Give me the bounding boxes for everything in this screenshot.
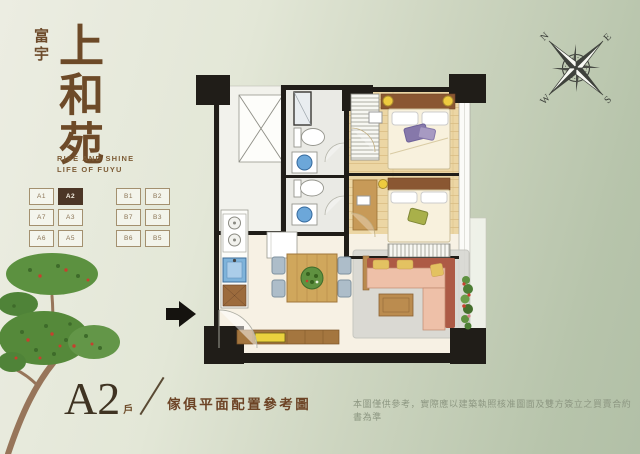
tv <box>255 333 285 342</box>
unit-a7[interactable]: A7 <box>29 209 54 226</box>
dining-chair <box>272 280 285 297</box>
caption-divider <box>140 377 165 415</box>
brochure-page: 富宇 上和苑 RISE AND SHINE LIFE OF FUYU A1 A2… <box>0 0 640 454</box>
unit-a1[interactable]: A1 <box>29 188 54 205</box>
dining-chair <box>338 280 351 297</box>
compass-w-label: W <box>538 92 553 107</box>
pillow <box>421 192 447 203</box>
unit-b6[interactable]: B6 <box>116 230 141 247</box>
compass-s-label: S <box>602 94 614 106</box>
brand-tagline-line2: LIFE OF FUYU <box>57 164 134 175</box>
brand-tagline: RISE AND SHINE LIFE OF FUYU <box>57 153 134 176</box>
table-plant <box>301 267 323 289</box>
pillow <box>392 112 418 125</box>
tree-canopy <box>0 253 120 372</box>
sofa-seat-right <box>423 288 445 330</box>
bedside-lamp <box>383 96 393 106</box>
caption-unit-number: A2 <box>64 376 120 422</box>
floor-plan <box>163 64 493 376</box>
keyplan-building-b: B1 B2 B7 B3 B6 B5 <box>116 188 170 247</box>
compass-icon: N E S W <box>526 18 626 118</box>
dining-chair <box>338 257 351 274</box>
nightstand <box>369 112 382 123</box>
bedside-lamp <box>443 96 453 106</box>
keyplan-building-a: A1 A2 A7 A3 A6 A5 <box>29 188 83 247</box>
unit-a6[interactable]: A6 <box>29 230 54 247</box>
toilet1-bowl <box>302 129 325 146</box>
brand-company-name: 富宇 <box>30 28 51 98</box>
bed2-wardrobe <box>388 244 450 257</box>
unit-b1[interactable]: B1 <box>116 188 141 205</box>
brand-project-name: 上和苑 <box>54 22 99 172</box>
caption-text: 傢俱平面配置參考圖 <box>167 393 311 413</box>
toilet1-tank <box>294 128 301 147</box>
sink2 <box>297 207 312 222</box>
plan-caption-row: A2 戶 傢俱平面配置參考圖 <box>64 370 384 422</box>
unit-a3[interactable]: A3 <box>58 209 83 226</box>
disclaimer-text: 本圖僅供參考，實際應以建築執照核准圖面及雙方簽立之買賣合約書為準 <box>353 397 633 423</box>
unit-a2-selected[interactable]: A2 <box>58 188 83 205</box>
brand-tagline-line1: RISE AND SHINE <box>57 153 134 164</box>
bedside-lamp <box>379 180 388 189</box>
sofa-back-right <box>445 258 455 328</box>
desk-laptop <box>357 196 370 205</box>
pillow <box>422 112 448 125</box>
balcony <box>470 218 486 330</box>
caption-unit-suffix: 戶 <box>123 401 133 416</box>
bed2-headboard <box>388 178 450 190</box>
sofa-cushion <box>430 263 444 277</box>
sofa-cushion <box>373 260 389 269</box>
sink1 <box>297 155 312 170</box>
entry-arrow-icon <box>166 301 196 327</box>
coffee-table <box>379 294 413 316</box>
toilet2-tank <box>294 180 301 197</box>
elevator-shaft <box>239 95 283 162</box>
sofa-cushion <box>397 260 413 269</box>
dining-chair <box>272 257 285 274</box>
compass-e-label: E <box>602 32 614 44</box>
unit-a5[interactable]: A5 <box>58 230 83 247</box>
master-bedroom <box>351 94 455 169</box>
pillow <box>391 192 417 203</box>
toilet2-bowl <box>301 180 324 196</box>
unit-b7[interactable]: B7 <box>116 209 141 226</box>
